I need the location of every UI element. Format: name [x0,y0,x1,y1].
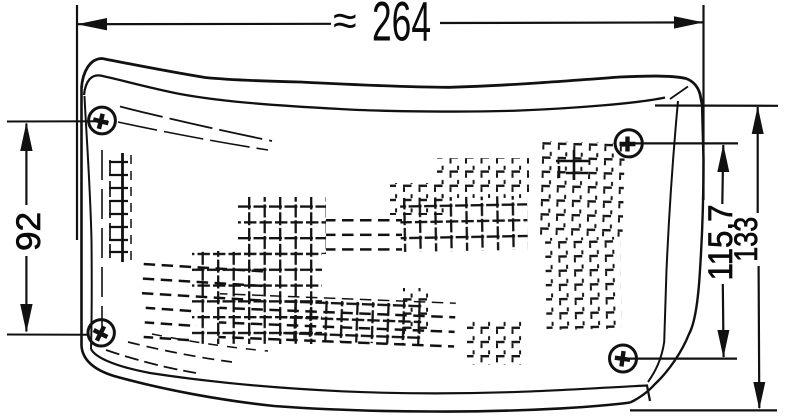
svg-text:≈: ≈ [333,0,357,45]
svg-text:264: 264 [372,0,431,53]
svg-text:133: 133 [728,217,764,262]
svg-text:92: 92 [10,212,48,251]
